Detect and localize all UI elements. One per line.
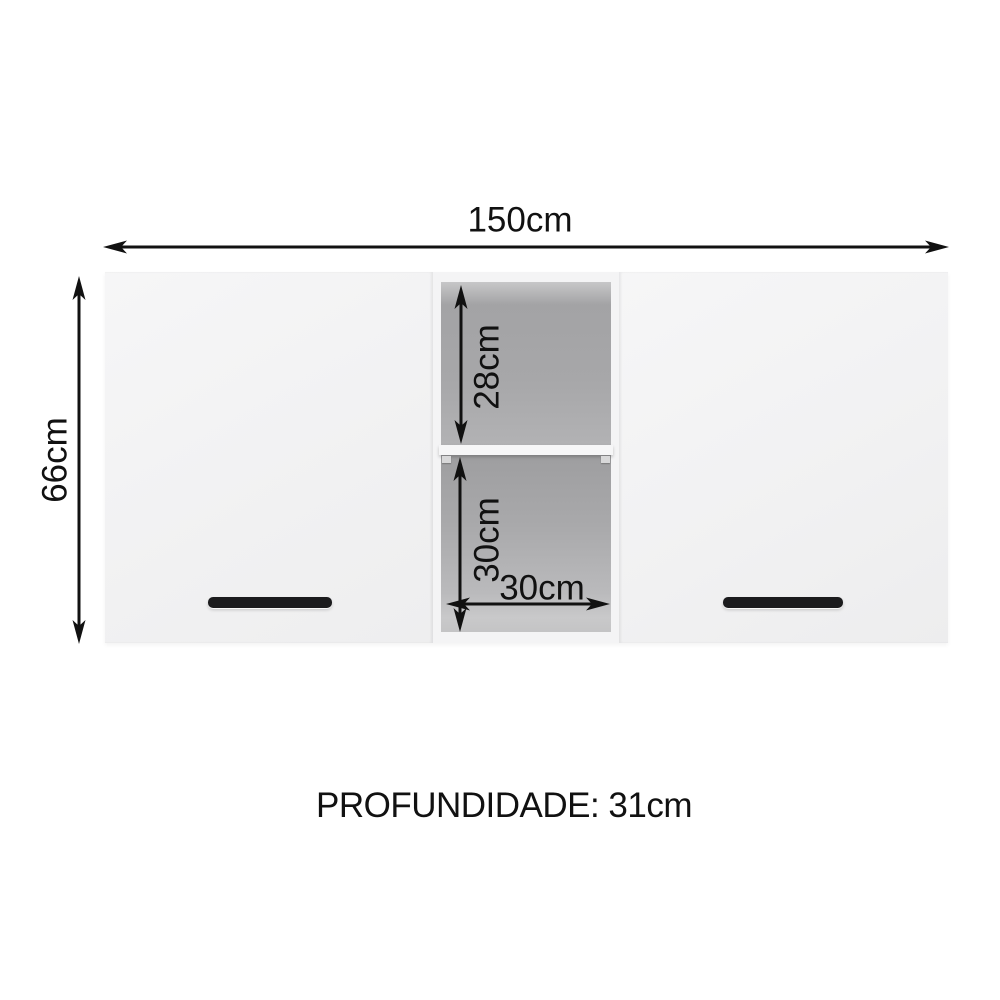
niche-middle-shelf: [439, 445, 613, 455]
shelf-pin-right: [601, 456, 610, 463]
width-dimension-label: 150cm: [467, 203, 572, 238]
right-door-handle: [723, 597, 843, 608]
niche-width-dimension-label: 30cm: [499, 571, 585, 606]
left-door: [105, 272, 433, 643]
height-dimension-label: 66cm: [38, 417, 73, 503]
depth-dimension-label: PROFUNDIDADE: 31cm: [316, 786, 692, 826]
shelf-pin-left: [442, 456, 451, 463]
left-door-handle: [208, 597, 332, 608]
width-dimension-arrow: [103, 241, 949, 254]
niche-upper-compartment: [441, 282, 611, 445]
product-dimension-diagram: 150cm 66cm 28cm 30cm 30cm PROFUNDIDADE: …: [0, 0, 1000, 1000]
right-door: [619, 272, 948, 643]
upper-niche-dimension-label: 28cm: [470, 324, 505, 410]
